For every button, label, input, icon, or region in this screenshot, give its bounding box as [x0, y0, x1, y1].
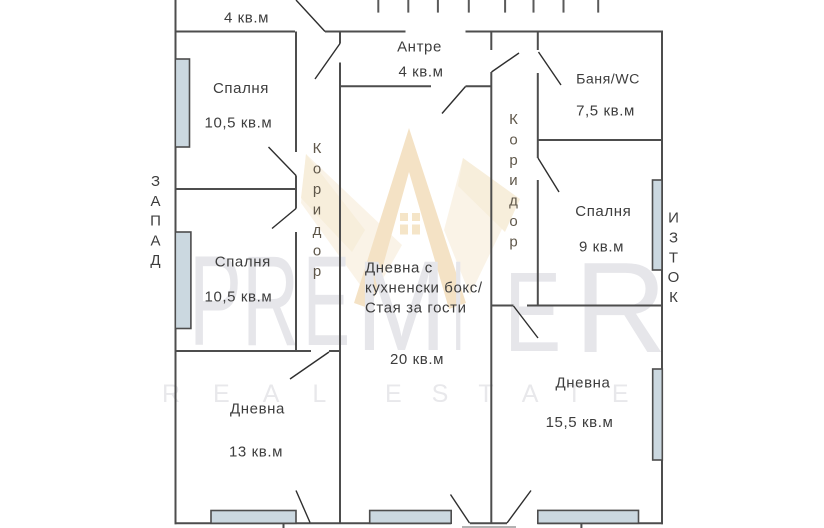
svg-text:д: д	[509, 193, 518, 210]
svg-text:Спалня: Спалня	[575, 203, 631, 220]
svg-text:10,5 кв.м: 10,5 кв.м	[205, 115, 273, 132]
svg-text:4 кв.м: 4 кв.м	[398, 64, 443, 81]
svg-text:р: р	[313, 181, 321, 198]
svg-text:9 кв.м: 9 кв.м	[579, 239, 624, 256]
svg-text:Д: Д	[150, 252, 160, 269]
svg-text:7,5 кв.м: 7,5 кв.м	[576, 103, 635, 120]
svg-text:К: К	[313, 140, 322, 157]
svg-text:Стая за гости: Стая за гости	[365, 300, 467, 317]
svg-text:Антре: Антре	[397, 39, 442, 56]
svg-text:20 кв.м: 20 кв.м	[390, 351, 444, 368]
svg-text:15,5 кв.м: 15,5 кв.м	[546, 414, 614, 431]
svg-text:Дневна с: Дневна с	[365, 260, 433, 277]
svg-text:и: и	[313, 201, 321, 218]
svg-text:А: А	[150, 232, 160, 249]
svg-text:10,5 кв.м: 10,5 кв.м	[205, 289, 273, 306]
svg-text:д: д	[313, 222, 322, 239]
svg-text:Спалня: Спалня	[213, 80, 269, 97]
svg-text:р: р	[509, 152, 517, 169]
svg-text:кухненски бокс/: кухненски бокс/	[365, 280, 483, 297]
svg-text:Спалня: Спалня	[215, 254, 271, 271]
svg-text:13 кв.м: 13 кв.м	[229, 444, 283, 461]
svg-text:р: р	[509, 233, 517, 250]
svg-text:К: К	[669, 289, 678, 306]
svg-text:и: и	[509, 172, 517, 189]
svg-text:Т: Т	[669, 249, 678, 266]
svg-text:р: р	[313, 263, 321, 280]
svg-text:И: И	[668, 210, 679, 227]
svg-text:К: К	[509, 111, 518, 128]
svg-text:З: З	[669, 230, 678, 247]
svg-text:4 кв.м: 4 кв.м	[224, 10, 269, 27]
svg-text:П: П	[150, 213, 161, 230]
svg-text:E: E	[504, 250, 561, 376]
svg-text:о: о	[313, 242, 321, 259]
svg-text:З: З	[151, 173, 160, 190]
svg-text:Дневна: Дневна	[556, 375, 611, 392]
svg-text:Дневна: Дневна	[230, 401, 285, 418]
svg-text:о: о	[509, 213, 517, 230]
svg-text:ESTATE: ESTATE	[385, 380, 659, 408]
svg-text:о: о	[313, 160, 321, 177]
svg-text:О: О	[668, 269, 680, 286]
svg-text:Баня/WC: Баня/WC	[576, 72, 640, 88]
svg-text:о: о	[509, 131, 517, 148]
svg-text:А: А	[150, 193, 160, 210]
